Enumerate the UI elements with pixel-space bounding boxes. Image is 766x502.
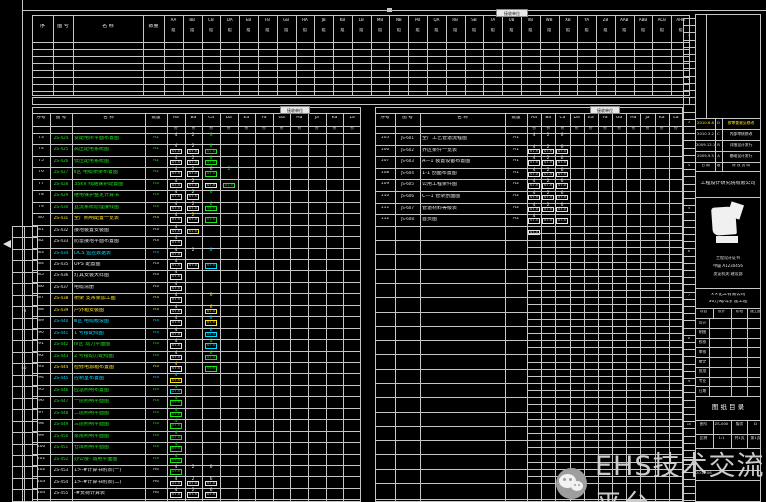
qty-cell: 207.5 (542, 204, 554, 225)
top-group-code: NB (389, 18, 408, 22)
row-code: ZS-427 (50, 170, 72, 174)
row-scale: A3 (145, 251, 167, 256)
row-code: ZS-435 (50, 262, 72, 266)
grid-line (375, 113, 683, 114)
top-group-code: UB (502, 18, 521, 22)
grid-line (185, 113, 186, 502)
ladder-rung (683, 414, 695, 415)
rev-header: 日 期 (696, 164, 715, 168)
ladder-rung (683, 400, 695, 401)
row-scale: A2 (145, 159, 167, 164)
grid-code: Fa (255, 116, 273, 121)
row-name: 界区条件一览表 (422, 148, 504, 153)
row-name: 桥架 支吊架加工图 (74, 296, 144, 301)
grid-line (32, 373, 361, 374)
ladder-rung (683, 140, 695, 141)
sig-label: 批准 (696, 369, 709, 373)
row-name: 2 号楼动力配线图 (74, 354, 144, 359)
grid-line (527, 269, 683, 270)
row-no: 80 (32, 216, 50, 221)
grid-line (695, 434, 761, 435)
row-code: ZS-429 (50, 193, 72, 197)
ladder-rung (683, 313, 695, 314)
row-code: ZS-455 (50, 491, 72, 495)
top-group-suffix: 组 (615, 28, 634, 32)
left-strip-line (12, 226, 13, 502)
grid-code: La (669, 116, 683, 121)
revision-code: C (715, 132, 722, 136)
revision-code: A (715, 154, 722, 158)
sig-label: 校核 (696, 340, 709, 344)
row-no: 75 (32, 159, 50, 164)
grid-line (527, 254, 683, 255)
grid-line (72, 113, 73, 502)
grid-line (527, 440, 683, 441)
grid-line (202, 113, 203, 502)
row-name: 1-1 剖面布置图 (422, 171, 504, 176)
grid-line (527, 312, 683, 313)
row-no: 96 (32, 399, 50, 404)
grid-line (695, 367, 761, 368)
row-no: 84 (32, 262, 50, 267)
rev-header: 版 (715, 164, 722, 168)
row-name: -#负荷计算表 (74, 491, 144, 496)
top-group-code: TA (483, 18, 502, 22)
row-no: 82 (32, 239, 50, 244)
top-group-suffix: 组 (333, 28, 352, 32)
row-no: 110 (375, 194, 395, 199)
ladder-rung (683, 104, 695, 105)
revision-desc: 内部审核修改 (722, 132, 760, 136)
grid-line (527, 247, 683, 248)
top-table-label: 接收单位 (496, 9, 528, 17)
row-no: 86 (32, 285, 50, 290)
top-group-code: GB (277, 18, 296, 22)
row-code: ZS-432 (50, 228, 72, 232)
top-group-suffix: 组 (502, 28, 521, 32)
grid-line (695, 171, 761, 172)
top-group-suffix: 组 (183, 28, 202, 32)
ladder-mark: 9 (684, 380, 694, 384)
wechat-bubble-small (571, 481, 583, 491)
row-scale: A3 (145, 273, 167, 278)
row-no: 108 (375, 171, 395, 176)
ladder-mark: 5 (684, 207, 694, 211)
row-scale: A3 (145, 319, 167, 324)
left-strip-rung (12, 444, 37, 445)
left-catalog-table-col-header: 序号 (32, 116, 50, 121)
wechat-icon (556, 468, 587, 499)
project-name: ××化工有限公司 (695, 293, 761, 298)
row-no: 81 (32, 228, 50, 233)
top-group-suffix: 组 (352, 28, 371, 32)
left-strip-rung (12, 352, 37, 353)
row-code: JS-601 (395, 136, 420, 140)
row-scale: A1 (505, 171, 527, 176)
row-scale: A4 (145, 480, 167, 485)
top-table-footer-band (32, 97, 690, 105)
grid-sub-mark: 份 (584, 127, 598, 131)
top-group-code: AA (164, 18, 183, 22)
row-scale: A3 (145, 296, 167, 301)
row-name: 三层照明平面图 (74, 422, 144, 427)
row-no: 104 (32, 491, 50, 496)
row-name: 1 号楼配线图 (74, 331, 144, 336)
revision-desc: 按审查意见修改 (722, 121, 760, 125)
row-no: 77 (32, 182, 50, 187)
grid-code: Ga (612, 116, 626, 121)
left-strip-rung (12, 409, 37, 410)
ladder-rung (683, 371, 695, 372)
top-group-suffix: 组 (446, 28, 465, 32)
left-strip-rung (12, 489, 37, 490)
ladder-rung (683, 421, 695, 422)
right-catalog-table-col-header: 名 称 (420, 116, 505, 121)
row-name: UPS 配置图 (74, 262, 144, 267)
row-scale: A4 (145, 468, 167, 473)
ladder-rung (683, 241, 695, 242)
ladder-rung (683, 436, 695, 437)
sig-label: 专业 (696, 379, 709, 383)
qty-cell: 207.5 (187, 249, 199, 270)
row-no: 85 (32, 273, 50, 278)
row-no: 74 (32, 147, 50, 152)
left-strip-rung (12, 283, 37, 284)
row-code: ZS-426 (50, 159, 72, 163)
grid-sub-mark: 份 (273, 127, 291, 131)
top-group-code: XB (559, 18, 578, 22)
top-group-code: LB (352, 18, 371, 22)
ladder-rung (683, 227, 695, 228)
ladder-rung (683, 191, 695, 192)
qty-cell: 607.5 (205, 203, 217, 224)
row-code: ZS-454 (50, 480, 72, 484)
project-name: 30万吨/年扩建工程 (695, 300, 761, 305)
row-code: ZS-447 (50, 399, 72, 403)
ladder-rung (683, 162, 695, 163)
grid-line (32, 236, 361, 237)
grid-sub-mark: 份 (612, 127, 626, 131)
grid-code: Ea (584, 116, 598, 121)
row-code: JS-603 (395, 159, 420, 163)
qty-cell: 407.5 (170, 489, 182, 502)
grid-code: Ba (185, 116, 203, 121)
grid-code: Ja (640, 116, 654, 121)
top-group-code: CB (202, 18, 221, 22)
top-group-code: QA (427, 18, 446, 22)
row-no: 100 (32, 445, 50, 450)
row-scale: A2 (505, 206, 527, 211)
wechat-eye (563, 478, 566, 481)
top-group-suffix: 组 (652, 28, 671, 32)
grid-sub-mark: 份 (308, 127, 326, 131)
row-no: 107 (375, 159, 395, 164)
grid-line (695, 347, 761, 348)
left-strip-rung (12, 249, 37, 250)
grid-sub-mark: 份 (541, 127, 555, 131)
row-no: 102 (32, 468, 50, 473)
grid-line (695, 420, 761, 421)
grid-line (32, 408, 361, 409)
ladder-rung (683, 263, 695, 264)
row-scale: A2 (505, 182, 527, 187)
row-no: 111 (375, 206, 395, 211)
grid-code: La (343, 116, 361, 121)
row-scale: A1 (505, 148, 527, 153)
left-strip-rung (12, 421, 37, 422)
grid-line (527, 354, 683, 355)
row-scale: A2 (145, 170, 167, 175)
grid-line (32, 316, 361, 317)
grid-line (527, 333, 683, 334)
ladder-rung (683, 256, 695, 257)
qty-cell: 607.5 (205, 249, 217, 270)
grid-sub-mark: 份 (626, 127, 640, 131)
row-scale: A3 (145, 228, 167, 233)
grid-sub-mark: 份 (185, 127, 203, 131)
row-scale: A3 (145, 216, 167, 221)
grid-code: Ka (326, 116, 344, 121)
row-scale: A4 (145, 491, 167, 496)
row-scale: A3 (145, 365, 167, 370)
num-cell: D (748, 422, 763, 426)
row-scale: A3 (145, 342, 167, 347)
row-scale: A3 (145, 193, 167, 198)
row-no: 98 (32, 422, 50, 427)
row-code: ZS-452 (50, 457, 72, 461)
mini-cell: 项目 (696, 310, 711, 314)
ladder-rung (683, 299, 695, 300)
top-group-code: HA (296, 18, 315, 22)
top-group-code: MB (371, 18, 390, 22)
row-name: 电缆清册 (74, 285, 144, 290)
grid-line (32, 91, 690, 92)
grid-code: Ga (273, 116, 291, 121)
grid-code: Ha (290, 116, 308, 121)
top-group-code: SB (465, 18, 484, 22)
qty-cell: 207.5 (223, 168, 235, 189)
ladder-rung (683, 320, 695, 321)
row-no: 91 (32, 342, 50, 347)
grid-line (32, 270, 361, 271)
grid-sub-mark: 份 (640, 127, 654, 131)
num-cell: 图号 (696, 422, 711, 426)
ladder-mark: 4 (684, 164, 694, 168)
top-group-code: FB (258, 18, 277, 22)
top-group-suffix: 组 (239, 28, 258, 32)
ladder-mark: 7 (684, 294, 694, 298)
top-group-suffix: 组 (371, 28, 390, 32)
top-group-suffix: 组 (258, 28, 277, 32)
grid-line (238, 113, 239, 502)
row-code: ZS-425 (50, 147, 72, 151)
row-code: ZS-449 (50, 422, 72, 426)
grid-line (527, 319, 683, 320)
row-scale: A3 (145, 376, 167, 381)
grid-sub-mark: 份 (290, 127, 308, 131)
row-name: C—1 管架剖面图 (422, 194, 504, 199)
row-code: JS-602 (395, 148, 420, 152)
institute-name: 工程设计研究院有限公司 (695, 181, 761, 186)
top-group-code: KB (333, 18, 352, 22)
row-scale: A3 (145, 239, 167, 244)
top-group-code: JB (314, 18, 333, 22)
title-block-line (706, 14, 707, 118)
left-strip-line (24, 226, 25, 502)
left-catalog-table-label: 接收单位 (280, 106, 310, 114)
row-code: ZS-444 (50, 365, 72, 369)
grid-line (695, 338, 761, 339)
left-strip-rung (12, 272, 37, 273)
ladder-rung (683, 184, 695, 185)
top-group-code: AAB (615, 18, 634, 22)
ladder-rung (683, 306, 695, 307)
grid-code: Ha (626, 116, 640, 121)
ladder-rung (683, 133, 695, 134)
grid-line (527, 233, 683, 234)
ladder-rung (683, 40, 695, 41)
row-no: 99 (32, 434, 50, 439)
row-code: ZS-431 (50, 216, 72, 220)
grid-line (527, 262, 683, 263)
ladder-rung (683, 198, 695, 199)
grid-code: Ja (308, 116, 326, 121)
row-name: 泵房照明平面图 (74, 434, 144, 439)
row-name: 防雷接地平面布置图 (74, 239, 144, 244)
grid-code: Da (220, 116, 238, 121)
grid-line (308, 113, 309, 502)
grid-code: Aa (527, 116, 541, 121)
grid-line (695, 386, 761, 387)
row-code: ZS-446 (50, 388, 72, 392)
grid-line (32, 282, 361, 283)
grid-line (32, 442, 361, 443)
grid-line (32, 431, 361, 432)
grid-line (343, 113, 344, 502)
grid-sub-mark: 份 (555, 127, 569, 131)
grid-line (527, 240, 683, 241)
row-name: 控制室布置图 (74, 376, 144, 381)
grid-sub-mark: 份 (570, 127, 584, 131)
grid-line (326, 113, 327, 502)
wechat-eye (569, 478, 572, 481)
grid-code: Ea (238, 116, 256, 121)
row-code: ZS-430 (50, 205, 72, 209)
ladder-rung (683, 342, 695, 343)
revision-desc: 详细设计发行 (722, 143, 760, 147)
row-no: 95 (32, 388, 50, 393)
grid-line (273, 113, 274, 502)
row-no: 112 (375, 217, 395, 222)
grid-line (695, 396, 761, 397)
grid-line (32, 396, 361, 397)
top-group-code: ABB (634, 18, 653, 22)
row-code: ZS-436 (50, 273, 72, 277)
stamp-line: 发证机关:建设部 (695, 272, 761, 276)
row-scale: A3 (145, 285, 167, 290)
ladder-rung (683, 25, 695, 26)
grid-sub-mark: 份 (343, 127, 361, 131)
ladder-mark: 3 (684, 121, 694, 125)
row-no: 73 (32, 136, 50, 141)
grid-line (695, 151, 761, 152)
ladder-rung (683, 68, 695, 69)
grid-line (527, 362, 683, 363)
right-catalog-table-col-header: 数量 (505, 116, 527, 121)
top-group-suffix: 组 (427, 28, 446, 32)
grid-line (32, 339, 361, 340)
row-name: 办公楼- 弱电平面图 (74, 457, 144, 462)
grid-line (32, 113, 361, 114)
top-group-suffix: 组 (296, 28, 315, 32)
cad-drawing-canvas: EHS技术交流平台 序图 号名 称数量AA组BB组CB组DA组EB组FB组GB组… (0, 0, 766, 502)
top-group-suffix: 组 (483, 28, 502, 32)
grid-line (527, 404, 683, 405)
ladder-rung (683, 18, 695, 19)
row-name: 二层照明平面图 (74, 411, 144, 416)
ladder-rung (683, 407, 695, 408)
top-group-suffix: 组 (408, 28, 427, 32)
row-name: 首页图 (422, 217, 504, 222)
num-cell: 1:1 (714, 436, 729, 440)
left-strip-rung (12, 295, 37, 296)
sig-label: 日期 (696, 389, 709, 393)
stamp-line: 工程设计证书 (695, 256, 761, 260)
ladder-mark: 1 (684, 34, 694, 38)
row-scale: A3 (145, 399, 167, 404)
ladder-rung (683, 155, 695, 156)
row-scale: A3 (145, 205, 167, 210)
row-scale: A3 (145, 388, 167, 393)
top-group-code: PB (408, 18, 427, 22)
sig-label: 制图 (696, 330, 709, 334)
ladder-rung (683, 284, 695, 285)
grid-line (527, 347, 683, 348)
row-scale: A1 (505, 136, 527, 141)
row-no: 97 (32, 411, 50, 416)
grid-line (527, 397, 683, 398)
grid-line (32, 305, 361, 306)
watermark-text: EHS技术交流平台 (595, 444, 766, 502)
row-name: 全厂工艺管道流程图 (422, 136, 504, 141)
top-group-code: VB (521, 18, 540, 22)
grid-line (695, 118, 761, 119)
grid-line (527, 276, 683, 277)
left-strip-mark: F3 (13, 309, 35, 313)
ladder-rung (683, 385, 695, 386)
top-col-header: 数量 (143, 24, 164, 29)
row-name: 管道材料等级表 (422, 206, 504, 211)
top-group-suffix: 组 (465, 28, 484, 32)
left-strip-rung (12, 398, 37, 399)
grid-line (695, 197, 761, 198)
row-scale: A3 (145, 445, 167, 450)
grid-code: Ca (202, 116, 220, 121)
top-group-code: DA (220, 18, 239, 22)
ladder-rung (683, 392, 695, 393)
mini-cell: 设计 (714, 310, 729, 314)
watermark: EHS技术交流平台 (556, 444, 766, 502)
grid-line (290, 113, 291, 502)
grid-line (695, 357, 761, 358)
right-catalog-table-col-header: 序号 (375, 116, 395, 121)
row-name: 35kV 线路保护配置图 (74, 182, 144, 187)
row-scale: A1 (505, 159, 527, 164)
row-code: ZS-453 (50, 468, 72, 472)
row-code: ZS-445 (50, 376, 72, 380)
grid-line (527, 376, 683, 377)
row-no: 76 (32, 170, 50, 175)
